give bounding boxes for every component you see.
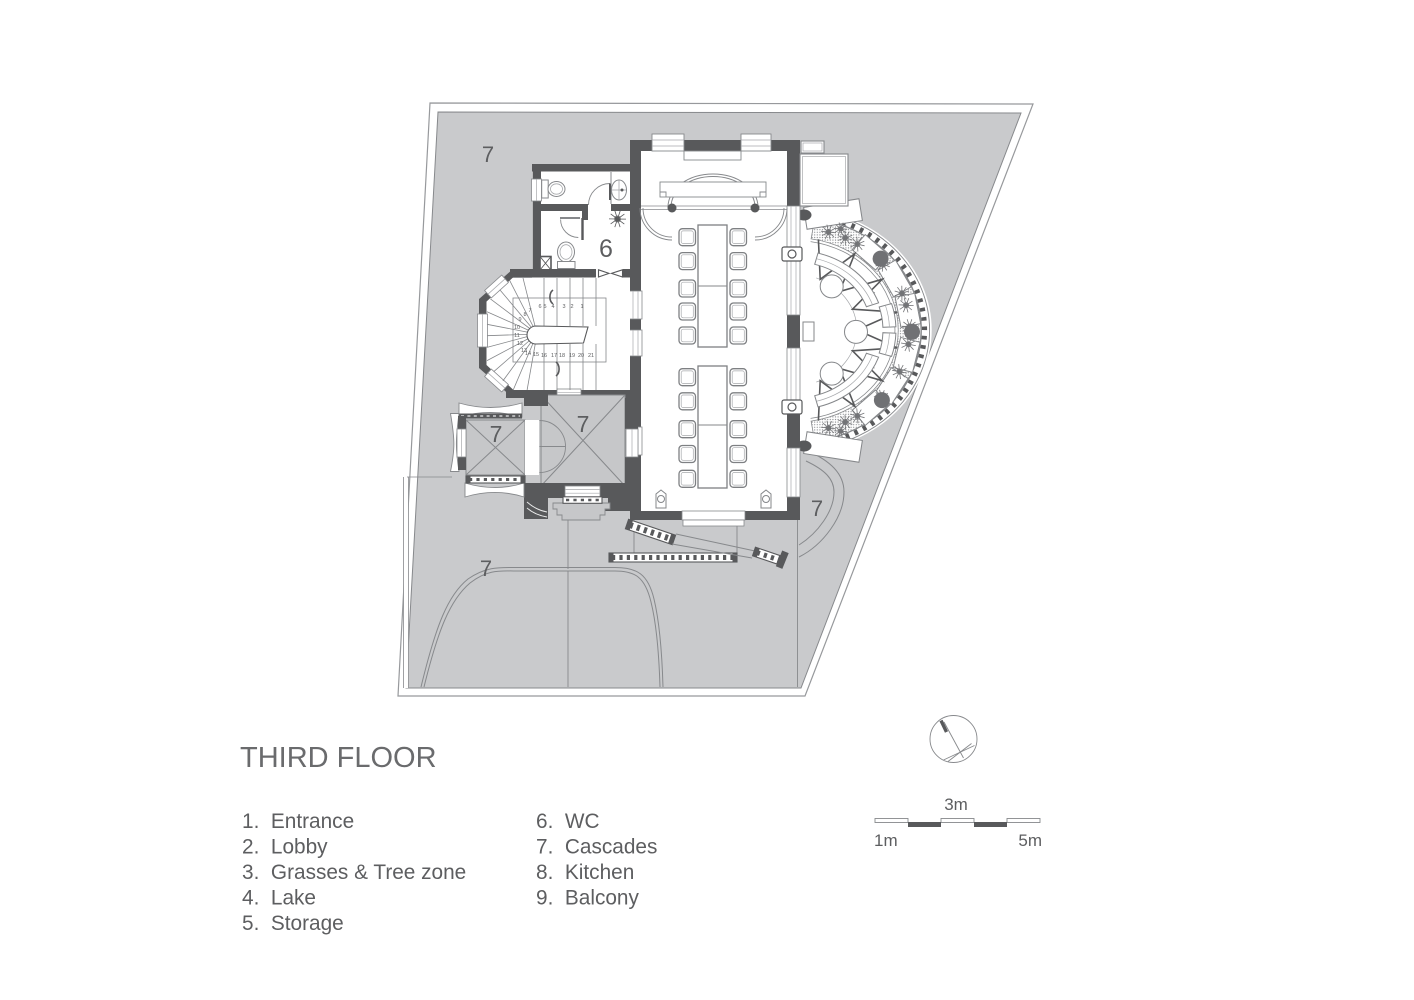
svg-text:4: 4 bbox=[551, 304, 554, 310]
svg-text:3m: 3m bbox=[944, 795, 968, 814]
svg-text:6. WC: 6. WC bbox=[536, 810, 600, 833]
svg-text:7: 7 bbox=[482, 142, 494, 167]
svg-text:6: 6 bbox=[538, 304, 541, 310]
svg-text:2: 2 bbox=[570, 304, 573, 310]
svg-text:1m: 1m bbox=[874, 831, 898, 850]
svg-text:1: 1 bbox=[580, 304, 583, 310]
svg-text:18: 18 bbox=[559, 353, 565, 359]
svg-text:7: 7 bbox=[490, 421, 503, 447]
svg-text:7: 7 bbox=[577, 411, 590, 437]
svg-text:7: 7 bbox=[528, 308, 531, 314]
svg-text:7: 7 bbox=[811, 496, 823, 521]
svg-text:11: 11 bbox=[514, 333, 520, 339]
svg-text:20: 20 bbox=[578, 353, 584, 359]
svg-text:3. Grasses & Tree zone: 3. Grasses & Tree zone bbox=[242, 861, 466, 884]
svg-text:5: 5 bbox=[543, 304, 546, 310]
svg-text:8: 8 bbox=[523, 312, 526, 318]
svg-text:9: 9 bbox=[518, 317, 521, 323]
svg-text:7: 7 bbox=[480, 556, 492, 581]
svg-text:14: 14 bbox=[525, 351, 531, 357]
svg-text:16: 16 bbox=[541, 353, 547, 359]
svg-text:5. Storage: 5. Storage bbox=[242, 912, 344, 935]
svg-text:21: 21 bbox=[588, 353, 594, 359]
svg-text:19: 19 bbox=[569, 353, 575, 359]
svg-text:17: 17 bbox=[551, 353, 557, 359]
svg-text:15: 15 bbox=[533, 352, 539, 358]
svg-text:THIRD FLOOR: THIRD FLOOR bbox=[240, 742, 437, 774]
svg-text:7. Cascades: 7. Cascades bbox=[536, 836, 657, 859]
svg-text:3: 3 bbox=[562, 304, 565, 310]
svg-text:4. Lake: 4. Lake bbox=[242, 887, 316, 910]
svg-text:6: 6 bbox=[599, 235, 613, 263]
svg-text:1. Entrance: 1. Entrance bbox=[242, 810, 354, 833]
svg-text:12: 12 bbox=[517, 341, 523, 347]
svg-text:8. Kitchen: 8. Kitchen bbox=[536, 861, 634, 884]
svg-text:9. Balcony: 9. Balcony bbox=[536, 887, 639, 910]
svg-text:2. Lobby: 2. Lobby bbox=[242, 836, 328, 859]
svg-text:5m: 5m bbox=[1018, 831, 1042, 850]
svg-text:10: 10 bbox=[514, 325, 520, 331]
